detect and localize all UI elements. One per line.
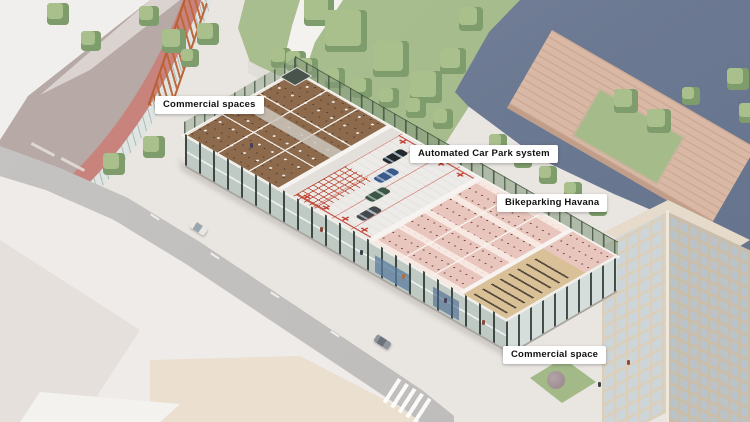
tower-corner-edge (666, 210, 669, 422)
trees-highlight-layer (0, 0, 2, 2)
pedestrian (598, 382, 601, 387)
ornamental-tree (547, 371, 565, 389)
pedestrian (482, 320, 485, 325)
car-on-road (373, 334, 392, 350)
annotation-commercial-spaces: Commercial spaces (155, 96, 264, 114)
pedestrian (627, 360, 630, 365)
tower-face-southeast (668, 212, 750, 422)
annotation-bikeparking-havana: Bikeparking Havana (497, 194, 607, 212)
annotation-commercial-space: Commercial space (503, 346, 606, 364)
pedestrian (360, 250, 363, 255)
pedestrian (250, 143, 253, 148)
pedestrian (320, 227, 323, 232)
axonometric-site-rendering: Commercial spaces Automated Car Park sys… (0, 0, 750, 422)
annotation-automated-car-park: Automated Car Park system (410, 145, 558, 163)
pedestrian (444, 298, 447, 303)
car-on-road (189, 220, 208, 236)
pedestrian (402, 274, 405, 279)
